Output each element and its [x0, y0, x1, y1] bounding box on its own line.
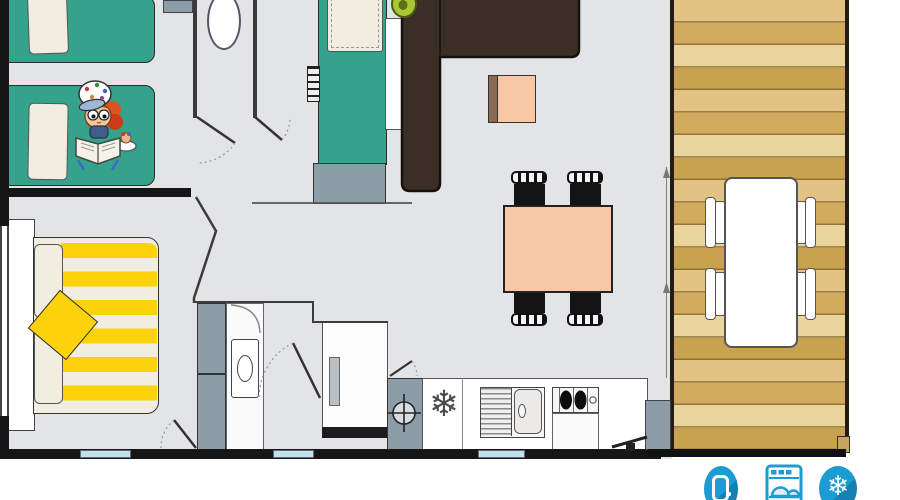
shower-base: [322, 427, 388, 438]
deck-chair-back-rb: [805, 268, 816, 320]
chair-seat: [570, 184, 601, 205]
chair-backrest: [567, 171, 603, 184]
dining-chair-bottom-right: [567, 292, 603, 326]
sink-drainer: [481, 388, 512, 436]
freezer-snowflake-icon: ❄: [426, 384, 462, 425]
air-conditioning-icon: ❄: [819, 466, 857, 500]
wardrobe-divider: [198, 373, 225, 375]
dining-chair-top-left: [511, 171, 547, 205]
kitchen-sink: [480, 387, 545, 438]
bunk-bed-mattress: [327, 0, 383, 52]
water-heater: [387, 378, 423, 450]
deck-right-edge: [845, 0, 849, 443]
wall-bedroom-divider: [0, 188, 191, 197]
snowflake-glyph: ❄: [819, 466, 857, 500]
bunk-footer: [313, 163, 386, 204]
deck-chair-back-rt: [805, 197, 816, 248]
dining-table: [503, 205, 613, 293]
side-table-edge: [489, 76, 498, 122]
fridge-handle: [727, 492, 731, 496]
wall-deck-boundary: [670, 0, 674, 450]
deck-table: [724, 177, 798, 348]
window-left: [0, 226, 9, 416]
wall-pillar-kitchen: [645, 400, 671, 450]
chair-backrest: [567, 313, 603, 326]
chair-seat: [514, 184, 545, 205]
window-master-bedroom: [80, 450, 131, 458]
floor-plan: ❄: [0, 0, 900, 500]
dining-chair-bottom-left: [511, 292, 547, 326]
fridge-door: [712, 475, 729, 500]
kids-bed-1-pillow: [27, 0, 69, 55]
shower-handle: [329, 357, 340, 406]
shelf-panel: [385, 18, 402, 130]
toilet: [231, 339, 259, 398]
side-table: [488, 75, 536, 123]
chair-backrest: [511, 171, 547, 184]
toilet-bowl: [237, 355, 253, 382]
hob-cabinet: [552, 413, 599, 449]
dishwasher-icon: Dishwasher: [765, 464, 803, 500]
sink-basin: [514, 389, 542, 434]
kitchen-divider: [462, 378, 463, 449]
hob: [552, 387, 599, 413]
wall-hall-left: [193, 0, 197, 118]
wall-deck-bottom: [648, 449, 846, 457]
fridge-icon: [704, 466, 738, 500]
dining-chair-top-right: [567, 171, 603, 205]
chair-seat: [514, 292, 545, 313]
chair-seat: [570, 292, 601, 313]
sink-faucet: [518, 404, 526, 418]
chair-backrest: [511, 313, 547, 326]
kids-bed-2-pillow: [27, 103, 68, 181]
wall-hall-right: [253, 0, 257, 118]
window-kitchen: [478, 450, 525, 458]
top-window-block: [163, 0, 193, 13]
window-bathroom: [273, 450, 314, 458]
wardrobe: [197, 303, 226, 450]
bunk-ladder: [307, 66, 320, 102]
